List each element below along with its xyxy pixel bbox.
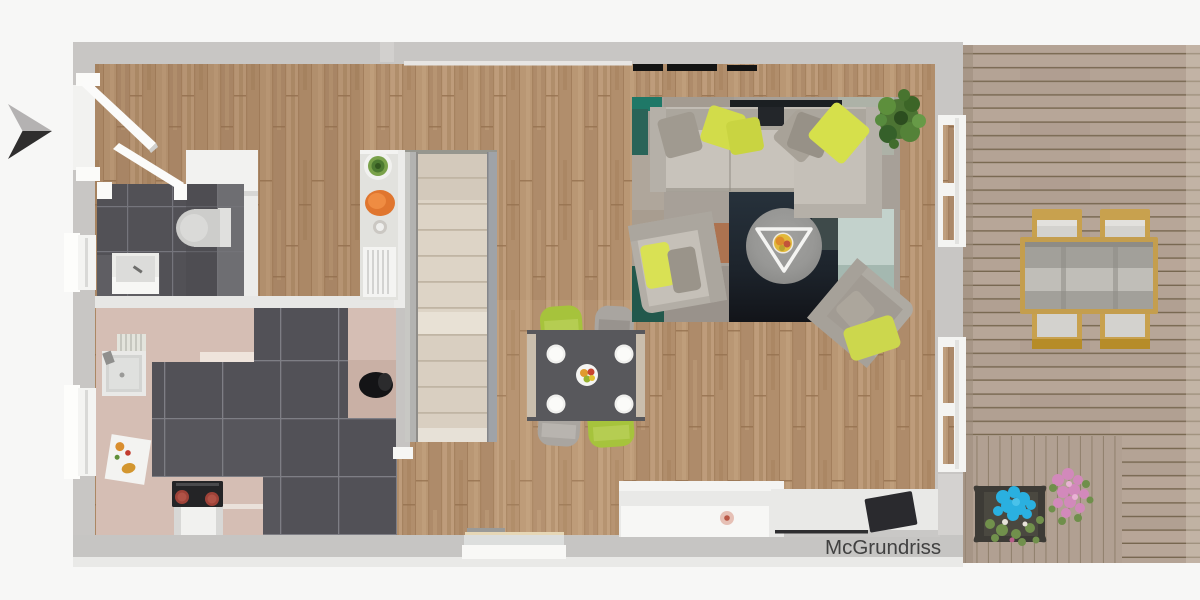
svg-text:McGrundriss: McGrundriss — [825, 536, 941, 559]
